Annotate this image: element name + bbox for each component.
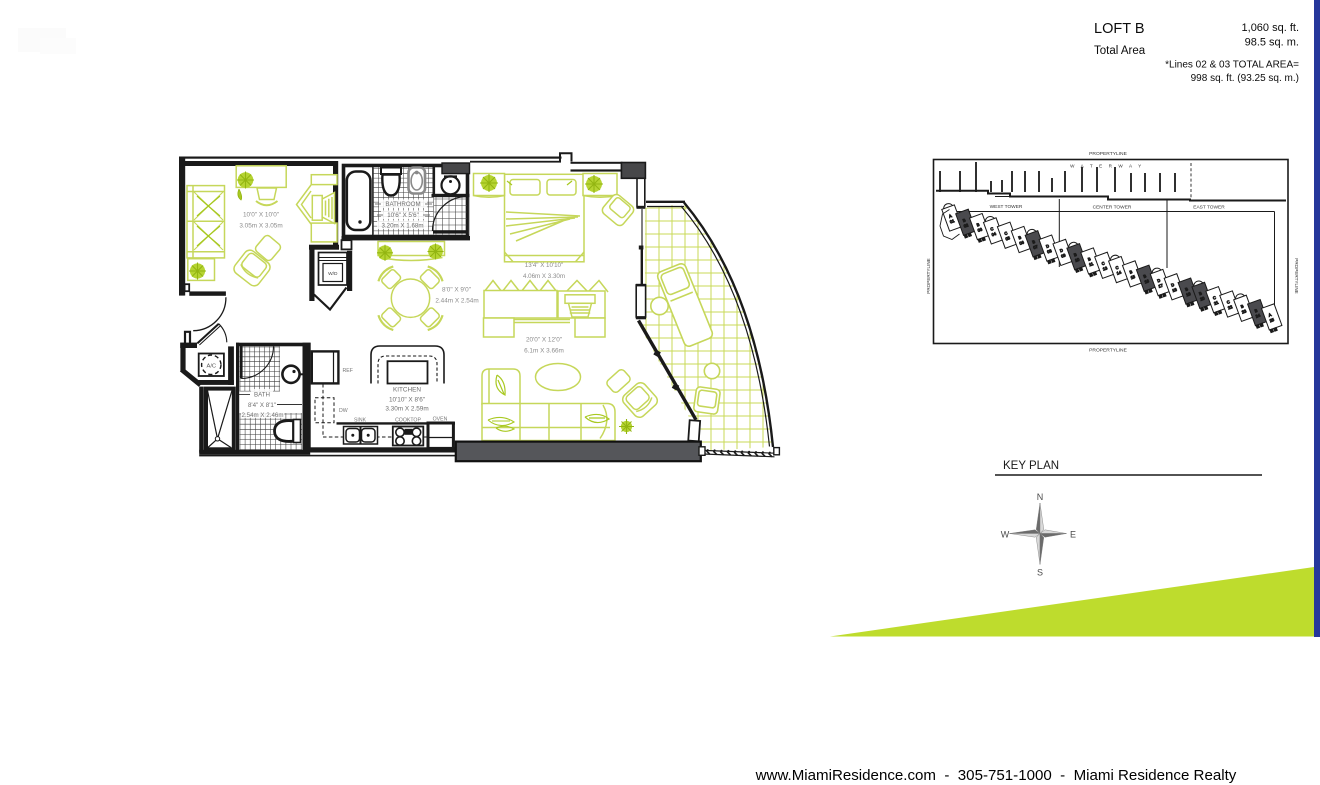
svg-text:W: W — [1001, 530, 1010, 540]
svg-text:8'0" X 9'0": 8'0" X 9'0" — [442, 287, 471, 294]
svg-text:PROPERTYLINE: PROPERTYLINE — [926, 258, 931, 293]
svg-text:PROPERTYLINE: PROPERTYLINE — [1089, 348, 1127, 354]
svg-text:10'0" X 10'0": 10'0" X 10'0" — [243, 212, 279, 219]
svg-text:PROPERTYLINE: PROPERTYLINE — [1294, 258, 1299, 293]
svg-text:13'4" X 10'10": 13'4" X 10'10" — [525, 262, 563, 269]
svg-text:www.MiamiResidence.com - 305: www.MiamiResidence.com - 305-751-1000 - … — [755, 767, 1237, 784]
svg-text:CENTER TOWER: CENTER TOWER — [1093, 205, 1132, 211]
svg-text:E: E — [1070, 530, 1076, 540]
svg-text:8'4" X 8'1": 8'4" X 8'1" — [248, 402, 276, 409]
svg-text:EAST TOWER: EAST TOWER — [1193, 205, 1225, 211]
svg-text:SINK: SINK — [354, 418, 367, 424]
svg-text:*Lines 02 & 03 TOTAL AREA=: *Lines 02 & 03 TOTAL AREA= — [1165, 60, 1299, 71]
svg-text:10'10" X 8'6": 10'10" X 8'6" — [389, 397, 425, 404]
svg-text:S: S — [1037, 568, 1043, 578]
svg-text:2.54m X 2.46m: 2.54m X 2.46m — [242, 412, 284, 419]
svg-text:LOFT B: LOFT B — [1094, 21, 1145, 37]
svg-text:PROPERTYLINE: PROPERTYLINE — [1089, 151, 1127, 157]
svg-text:REF: REF — [343, 368, 353, 374]
svg-text:3.05m X 3.05m: 3.05m X 3.05m — [239, 223, 282, 230]
svg-text:3.30m X 2.59m: 3.30m X 2.59m — [385, 406, 428, 413]
svg-text:20'0" X 12'0": 20'0" X 12'0" — [526, 337, 562, 344]
svg-text:2.44m X 2.54m: 2.44m X 2.54m — [435, 298, 478, 305]
svg-text:Total Area: Total Area — [1094, 45, 1146, 57]
svg-text:A/C: A/C — [206, 363, 216, 369]
svg-text:4.06m X 3.30m: 4.06m X 3.30m — [523, 273, 565, 280]
svg-text:COOKTOP: COOKTOP — [395, 418, 421, 424]
svg-text:10'6" X 5'6": 10'6" X 5'6" — [387, 212, 419, 219]
svg-text:998 sq. ft. (93.25 sq. m.): 998 sq. ft. (93.25 sq. m.) — [1191, 73, 1299, 84]
svg-text:OVEN: OVEN — [433, 417, 448, 423]
svg-text:3.20m X 1.68m: 3.20m X 1.68m — [382, 223, 424, 230]
svg-text:N: N — [1037, 492, 1044, 502]
svg-text:KITCHEN: KITCHEN — [393, 387, 421, 394]
svg-text:BATHROOM: BATHROOM — [385, 201, 420, 208]
svg-text:6.1m X 3.66m: 6.1m X 3.66m — [524, 348, 564, 355]
svg-text:DW: DW — [339, 408, 348, 414]
svg-text:W/D: W/D — [328, 271, 338, 277]
svg-text:KEY PLAN: KEY PLAN — [1003, 460, 1059, 472]
svg-text:WEST TOWER: WEST TOWER — [990, 204, 1023, 210]
svg-text:98.5 sq. m.: 98.5 sq. m. — [1245, 37, 1299, 49]
svg-text:1,060 sq. ft.: 1,060 sq. ft. — [1242, 22, 1299, 34]
svg-text:BATH: BATH — [254, 392, 270, 399]
